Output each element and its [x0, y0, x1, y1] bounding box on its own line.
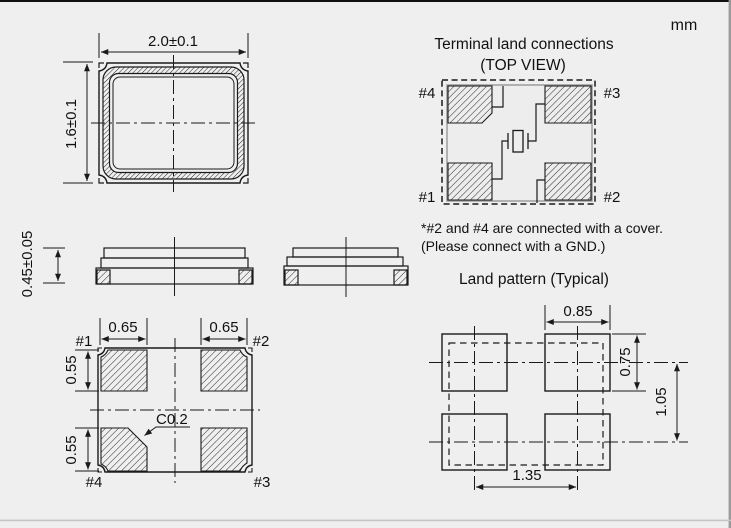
chamfer-leader	[145, 427, 191, 436]
package-top-view: 2.0±0.1 1.6±0.1	[63, 33, 256, 192]
terminal-land-connections: Terminal land connections (TOP VIEW) #4 …	[419, 36, 663, 254]
pad-height-bottom-label: 0.55	[63, 435, 80, 464]
cover-note-line1: *#2 and #4 are connected with a cover.	[421, 220, 663, 236]
pad-width-label: 0.85	[563, 303, 592, 320]
chamfer-label: C0.2	[156, 411, 188, 428]
terminal-pin4-label: #4	[419, 85, 436, 102]
drawing-canvas: mm 2.0±0.1	[0, 0, 731, 528]
terminal-pad-3	[545, 86, 591, 123]
terminal-pin3-label: #3	[604, 85, 621, 102]
land-pattern-title: Land pattern (Typical)	[459, 271, 609, 288]
side-view-end	[284, 237, 408, 297]
bottom-pin3-label: #3	[254, 474, 271, 491]
thickness-dimension	[43, 248, 65, 283]
pad-4	[101, 428, 147, 471]
bottom-pin2-label: #2	[253, 333, 270, 350]
side-view-front	[96, 237, 253, 296]
pad-1	[101, 350, 147, 391]
pad-height-label: 0.75	[617, 347, 634, 376]
pad-height-top-label: 0.55	[63, 355, 80, 384]
pad-3	[201, 428, 247, 471]
terminal-pin2-label: #2	[604, 189, 621, 206]
terminal-title: Terminal land connections	[434, 36, 613, 53]
pad-width-left-label: 0.65	[108, 319, 137, 336]
side-pad-right	[239, 270, 252, 284]
frame-bottom-divider	[0, 520, 731, 522]
pad-2	[201, 350, 247, 391]
side-pad-right	[394, 270, 407, 285]
terminal-subtitle: (TOP VIEW)	[480, 57, 566, 74]
pad-width-right-label: 0.65	[209, 319, 238, 336]
terminal-pad-2	[545, 163, 591, 200]
package-outline-dashed	[449, 343, 603, 465]
cover-note-line2: (Please connect with a GND.)	[421, 238, 605, 254]
land-pads	[442, 334, 610, 470]
side-views: 0.45±0.05	[19, 231, 408, 298]
terminal-pad-1	[448, 163, 492, 200]
height-dim-label: 1.6±0.1	[63, 99, 80, 149]
datasheet-dimension-drawing: mm 2.0±0.1	[0, 0, 731, 528]
col-pitch-label: 1.35	[512, 467, 541, 484]
frame-top-rule	[0, 0, 731, 2]
bottom-pin1-label: #1	[76, 333, 93, 350]
side-pad-left	[285, 270, 298, 285]
row-pitch-label: 1.05	[653, 387, 670, 416]
side-pad-left	[97, 270, 110, 284]
terminal-pin1-label: #1	[419, 189, 436, 206]
unit-label: mm	[671, 17, 698, 34]
center-lines	[429, 326, 688, 492]
land-pattern: Land pattern (Typical) 0.85 0.75	[429, 271, 688, 492]
bottom-pin4-label: #4	[86, 474, 103, 491]
terminal-pad-4	[448, 86, 492, 123]
thickness-dim-label: 0.45±0.05	[19, 231, 36, 298]
width-dim-label: 2.0±0.1	[148, 33, 198, 50]
bottom-view: 0.65 0.65 0.55 0.55 C0.2 #1 #2 #4 #3	[63, 318, 270, 491]
